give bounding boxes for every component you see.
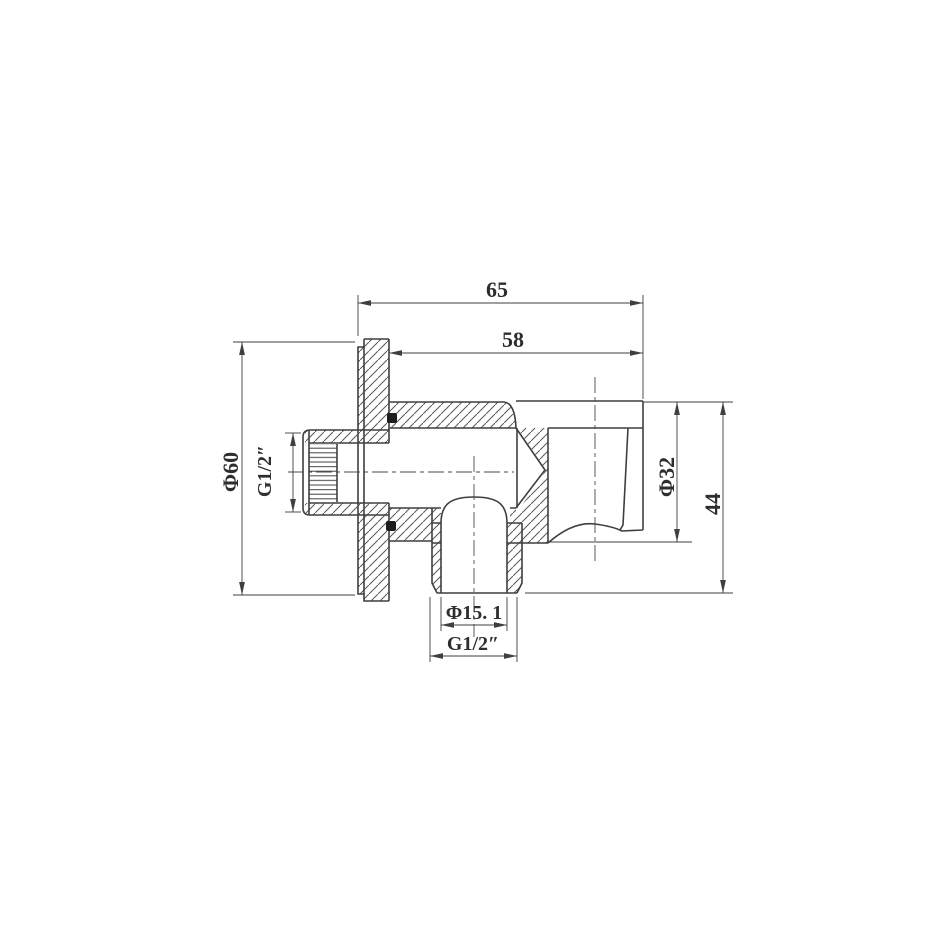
outlet-right-wall-hatch [507, 523, 522, 593]
dim-inlet-thread-label: G1/2″ [254, 445, 276, 497]
dim-overall-depth-label: 65 [486, 277, 508, 302]
dim-holder-diameter-label: Φ32 [654, 457, 679, 497]
outlet-left-wall-hatch [432, 508, 441, 593]
dim-inlet-thread: G1/2″ [254, 433, 301, 512]
inlet-top-wall-hatch [305, 430, 389, 443]
o-ring-top [387, 413, 397, 423]
technical-drawing-canvas: 65 58 Φ60 G1/2″ Φ32 [0, 0, 950, 950]
dim-holder-height: 44 [525, 402, 733, 593]
dim-body-depth-label: 58 [502, 327, 524, 352]
inlet-bottom-wall-hatch [305, 503, 389, 515]
dim-holder-diameter: Φ32 [548, 402, 733, 542]
section-drawing: 65 58 Φ60 G1/2″ Φ32 [0, 0, 950, 950]
dim-flange-diameter-label: Φ60 [218, 452, 243, 492]
o-ring-bottom [386, 521, 396, 531]
dim-overall-depth: 65 [358, 277, 643, 399]
female-thread-lines [309, 444, 337, 502]
dim-body-depth: 58 [389, 327, 643, 353]
dim-holder-height-label: 44 [700, 493, 725, 515]
dim-outlet-bore-label: Φ15. 1 [446, 602, 503, 624]
body-top-wall-hatch [389, 402, 516, 428]
holder-saddle-cutout [548, 524, 643, 543]
dim-outlet-thread-label: G1/2″ [447, 633, 499, 655]
